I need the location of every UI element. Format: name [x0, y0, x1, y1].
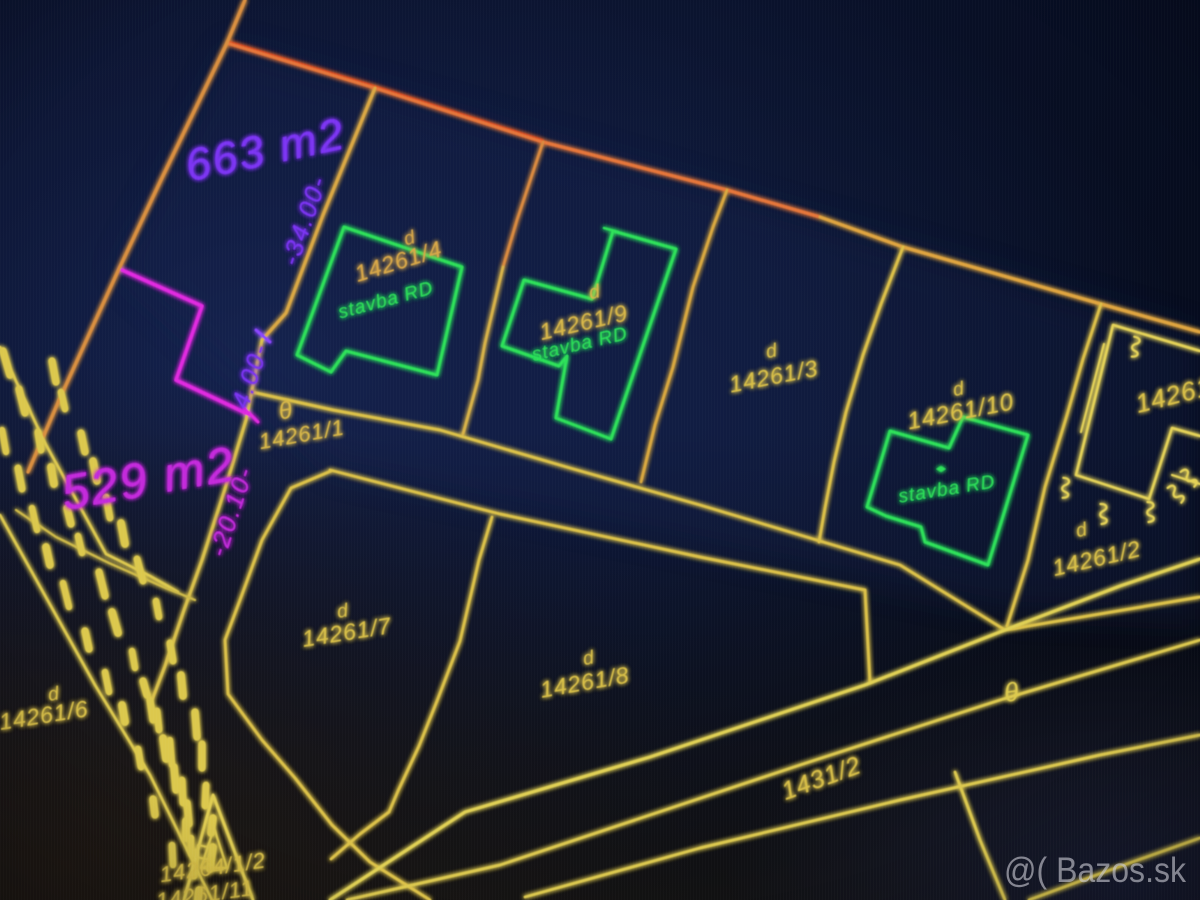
- svg-text:@( Bazos.sk: @( Bazos.sk: [1004, 851, 1186, 890]
